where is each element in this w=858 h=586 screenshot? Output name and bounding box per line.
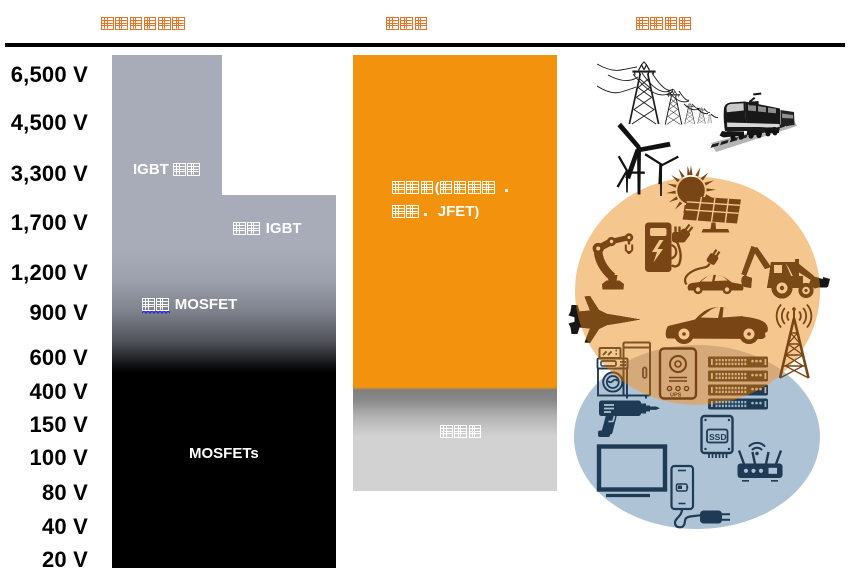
svg-text:SSD: SSD — [709, 432, 726, 442]
svg-text:UPS: UPS — [670, 393, 682, 399]
